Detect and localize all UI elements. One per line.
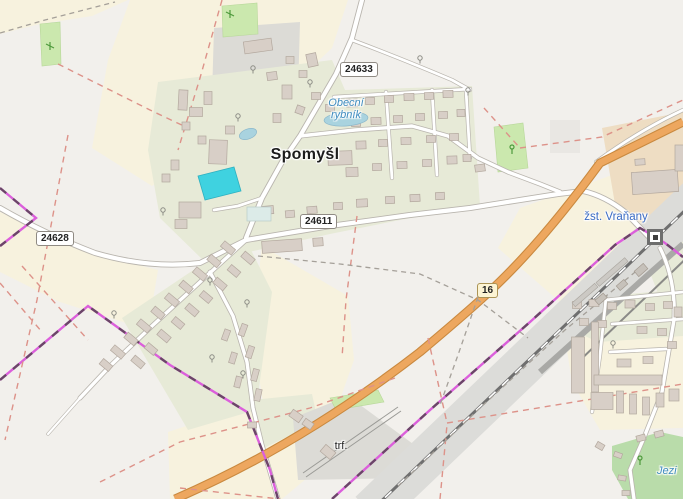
place-label-spomysl: Spomyšl — [250, 146, 360, 164]
map-canvas[interactable]: 24633 24628 24611 16 Spomyšl Obecní rybn… — [0, 0, 683, 499]
road-ref-24628: 24628 — [36, 231, 74, 246]
water-label-jezirko: Jezi — [657, 465, 677, 477]
road-ref-24633: 24633 — [340, 62, 378, 77]
road-ref-24611: 24611 — [300, 214, 337, 229]
transformer-label: trf. — [326, 440, 356, 452]
road-ref-16: 16 — [477, 283, 498, 298]
railway-station-icon — [647, 229, 663, 245]
station-label-vranany: žst. Vraňany — [560, 211, 672, 223]
water-label-obecni-rybnik: Obecní rybník — [306, 97, 386, 121]
